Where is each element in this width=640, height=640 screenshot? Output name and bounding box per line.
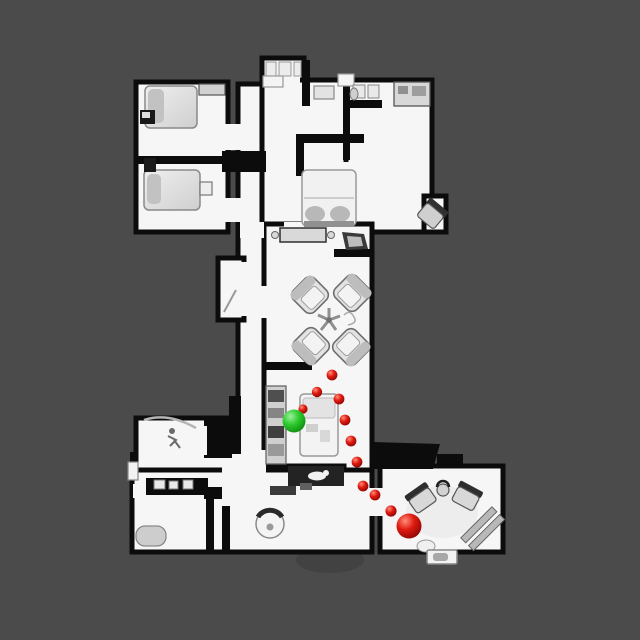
closet-tab <box>128 462 138 480</box>
side-table-round <box>437 484 449 496</box>
nightstand <box>144 158 156 172</box>
path-waypoint <box>346 436 357 447</box>
path-waypoint <box>358 481 369 492</box>
path-waypoint <box>312 387 322 397</box>
side-table <box>200 182 212 195</box>
bed-base <box>304 221 354 227</box>
stool <box>272 232 279 239</box>
toilet-drain <box>267 524 274 531</box>
bench-figure-head <box>323 470 329 476</box>
closet-shelf-items <box>266 62 301 76</box>
map-viewport <box>0 0 640 640</box>
path-waypoint <box>370 490 381 501</box>
closet-nook <box>196 426 207 455</box>
bed-pillow-area <box>303 398 335 418</box>
stool <box>328 232 335 239</box>
ottoman <box>136 526 166 546</box>
dark-chair-seat <box>347 236 363 247</box>
blanket-fold <box>320 430 330 442</box>
low-table <box>300 483 312 490</box>
shelf-items <box>154 480 193 489</box>
pillow <box>330 206 350 222</box>
hall-cabinet <box>314 86 334 99</box>
blanket-fold <box>306 424 318 432</box>
shelf-item <box>398 86 408 94</box>
map-canvas <box>0 0 640 640</box>
path-waypoint <box>352 457 363 468</box>
pillow <box>305 206 325 222</box>
start-sphere <box>283 410 306 433</box>
goal-sphere <box>397 514 422 539</box>
path-waypoint <box>327 370 338 381</box>
doorstep-mat <box>433 553 448 561</box>
wardrobe-shelf <box>268 390 284 402</box>
door-leaf <box>263 76 283 87</box>
door-leaf <box>338 74 354 86</box>
low-table <box>270 486 296 495</box>
nightstand-top <box>142 112 150 118</box>
vase <box>350 88 358 100</box>
wardrobe-shelf <box>268 408 284 418</box>
dresser <box>199 84 225 95</box>
path-waypoint <box>334 394 345 405</box>
pillow <box>147 174 161 204</box>
path-waypoint <box>385 505 396 516</box>
credenza <box>280 228 326 242</box>
shelf-item <box>412 86 426 96</box>
path-waypoint <box>340 415 351 426</box>
wardrobe-shelf <box>268 426 284 438</box>
wardrobe-shelf <box>268 444 284 456</box>
